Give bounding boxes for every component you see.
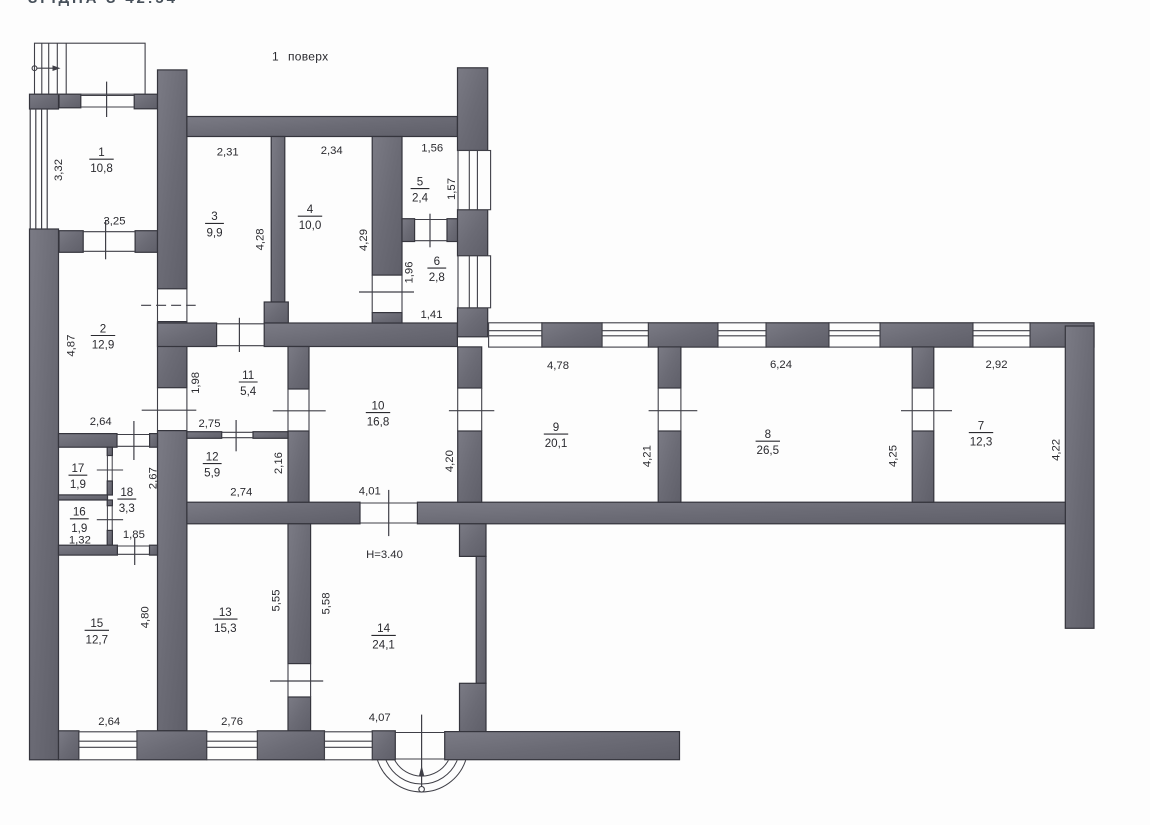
svg-text:9,9: 9,9	[206, 226, 222, 239]
svg-text:5,4: 5,4	[240, 385, 257, 398]
svg-text:4,21: 4,21	[641, 445, 653, 467]
svg-text:18: 18	[120, 486, 133, 499]
svg-text:1,85: 1,85	[123, 529, 145, 541]
svg-text:16,8: 16,8	[367, 416, 390, 429]
svg-text:5,55: 5,55	[271, 590, 283, 612]
svg-text:13: 13	[219, 606, 232, 619]
svg-text:2,31: 2,31	[217, 147, 239, 159]
svg-text:16: 16	[73, 506, 86, 519]
svg-text:1,41: 1,41	[421, 309, 443, 321]
svg-text:11: 11	[242, 369, 254, 382]
svg-text:1,57: 1,57	[446, 178, 458, 200]
svg-text:15: 15	[90, 617, 103, 630]
svg-text:2,8: 2,8	[429, 271, 445, 284]
svg-text:4: 4	[307, 203, 314, 216]
svg-text:5,9: 5,9	[204, 467, 220, 480]
svg-text:1,9: 1,9	[70, 478, 86, 491]
svg-text:2,64: 2,64	[98, 716, 120, 728]
svg-text:ЗГІДНА З 42:54: ЗГІДНА З 42:54	[28, 0, 178, 7]
svg-text:5: 5	[417, 175, 423, 188]
svg-text:8: 8	[765, 428, 771, 441]
svg-text:12,7: 12,7	[86, 633, 109, 646]
svg-text:10: 10	[372, 399, 385, 412]
svg-text:10,0: 10,0	[299, 219, 322, 232]
svg-text:12: 12	[206, 450, 219, 463]
svg-text:12,3: 12,3	[970, 436, 993, 449]
svg-text:4,80: 4,80	[140, 606, 152, 628]
svg-text:H=3.40: H=3.40	[366, 549, 403, 561]
svg-text:6,24: 6,24	[770, 359, 792, 371]
svg-text:5,58: 5,58	[321, 593, 333, 615]
svg-text:3,25: 3,25	[104, 216, 126, 228]
svg-text:4,28: 4,28	[255, 228, 267, 250]
svg-text:1: 1	[272, 50, 279, 64]
svg-text:6: 6	[434, 255, 440, 268]
svg-text:26,5: 26,5	[757, 444, 780, 457]
svg-text:2: 2	[100, 322, 106, 335]
svg-text:4,87: 4,87	[66, 335, 78, 357]
svg-text:9: 9	[553, 421, 559, 434]
svg-text:4,78: 4,78	[547, 360, 569, 372]
svg-text:20,1: 20,1	[545, 437, 568, 450]
svg-text:2,4: 2,4	[412, 192, 429, 205]
svg-text:7: 7	[978, 419, 984, 432]
svg-text:1: 1	[98, 146, 104, 159]
svg-text:2,75: 2,75	[199, 418, 221, 430]
svg-text:2,74: 2,74	[230, 487, 252, 499]
svg-text:4,20: 4,20	[444, 450, 456, 472]
svg-text:24,1: 24,1	[372, 638, 395, 651]
svg-text:1,9: 1,9	[71, 522, 87, 535]
svg-text:14: 14	[377, 622, 390, 635]
svg-text:1,98: 1,98	[190, 372, 202, 394]
svg-text:3: 3	[211, 210, 217, 223]
svg-text:1,32: 1,32	[69, 535, 91, 547]
svg-text:3,3: 3,3	[119, 502, 135, 515]
svg-text:2,67: 2,67	[147, 467, 159, 489]
svg-text:4,22: 4,22	[1051, 439, 1063, 461]
svg-text:4,01: 4,01	[359, 485, 381, 497]
svg-text:2,16: 2,16	[273, 452, 285, 474]
svg-text:поверх: поверх	[288, 50, 328, 64]
svg-text:1,96: 1,96	[404, 262, 416, 284]
svg-text:17: 17	[71, 462, 84, 475]
svg-text:12,9: 12,9	[92, 339, 115, 352]
svg-text:4,25: 4,25	[888, 445, 900, 467]
svg-text:2,34: 2,34	[321, 145, 343, 157]
svg-text:2,76: 2,76	[221, 716, 243, 728]
svg-text:2,64: 2,64	[90, 416, 112, 428]
svg-text:2,92: 2,92	[986, 359, 1008, 371]
svg-text:4,29: 4,29	[358, 229, 370, 251]
svg-text:1,56: 1,56	[421, 142, 443, 154]
svg-text:15,3: 15,3	[214, 622, 237, 635]
svg-text:4,07: 4,07	[369, 712, 391, 724]
svg-text:10,8: 10,8	[90, 162, 113, 175]
svg-text:3,32: 3,32	[53, 159, 65, 181]
